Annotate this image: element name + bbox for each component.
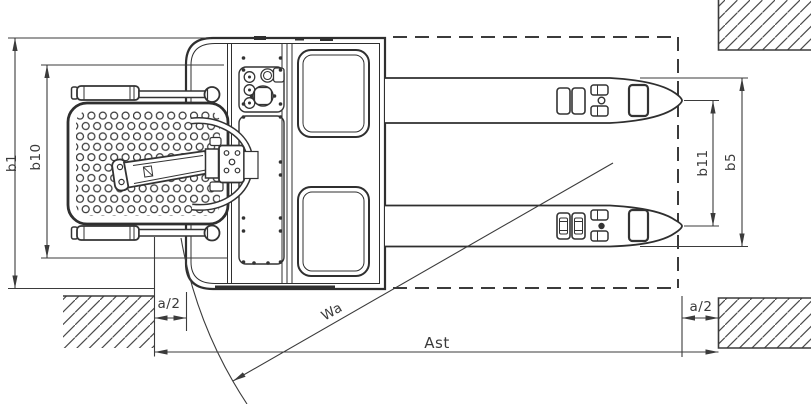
label-b1: b1 xyxy=(4,154,20,172)
fork-top xyxy=(385,78,682,123)
label-b11: b11 xyxy=(695,149,711,176)
pallet-truck-diagram xyxy=(0,0,811,404)
obstacle-block-bottom-right xyxy=(719,298,811,348)
obstacle-block-bottom-left xyxy=(63,296,155,348)
label-a2-left: a/2 xyxy=(158,296,181,312)
label-b5: b5 xyxy=(723,153,739,171)
pallet-outline-dashed xyxy=(393,37,678,288)
label-ast: Ast xyxy=(424,334,449,352)
battery-cover-bottom xyxy=(298,187,369,276)
label-a2-right: a/2 xyxy=(690,299,713,315)
diagram-canvas: b1 b10 b11 b5 a/2 a/2 Wa Ast xyxy=(0,0,811,404)
obstacle-block-top-right xyxy=(719,0,811,50)
fork-bottom xyxy=(385,206,682,247)
label-b10: b10 xyxy=(28,143,44,170)
battery-cover-top xyxy=(298,50,369,137)
